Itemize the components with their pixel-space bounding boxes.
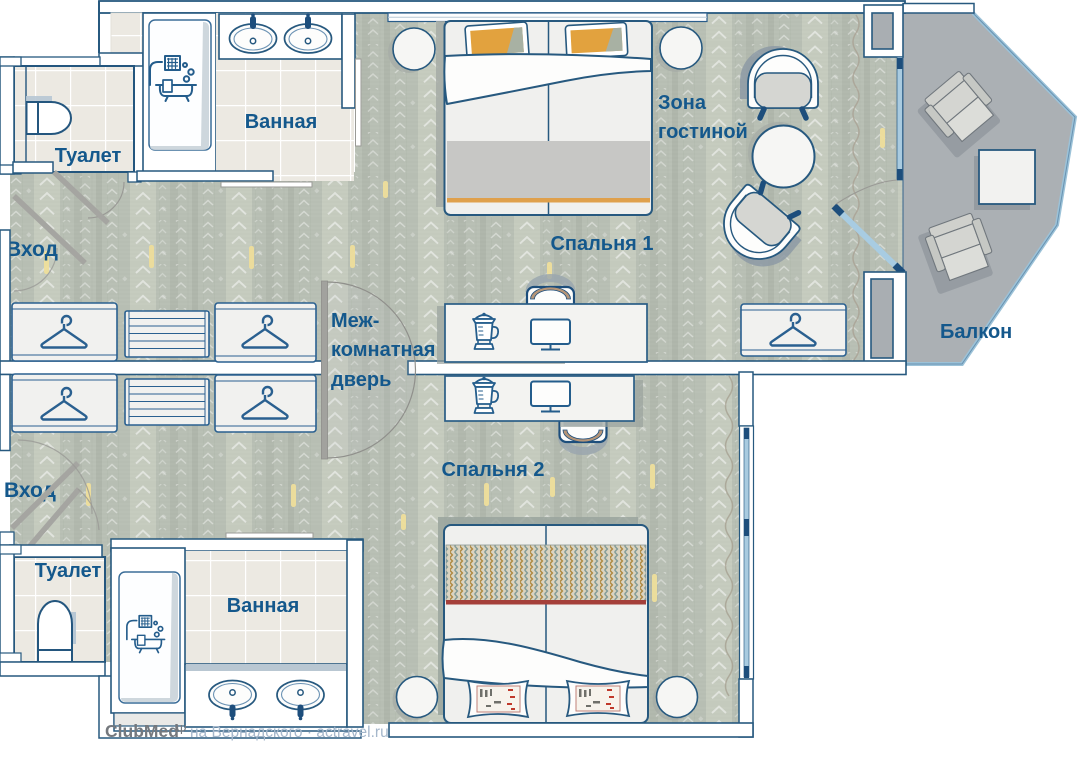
svg-text:на Вернадского · actravel.ru: на Вернадского · actravel.ru (190, 724, 389, 741)
svg-text:Ψ: Ψ (176, 722, 187, 737)
svg-text:Вход: Вход (6, 238, 58, 261)
svg-text:Ванная: Ванная (245, 111, 318, 133)
svg-text:дверь: дверь (331, 369, 391, 391)
svg-text:гостиной: гостиной (658, 121, 748, 143)
svg-text:Туалет: Туалет (35, 560, 102, 582)
svg-text:Ванная: Ванная (227, 595, 300, 617)
svg-text:Спальня 1: Спальня 1 (550, 233, 653, 255)
svg-text:Меж-: Меж- (331, 310, 379, 332)
svg-text:Зона: Зона (658, 92, 707, 114)
svg-text:ClubMed: ClubMed (105, 721, 179, 741)
svg-text:Спальня 2: Спальня 2 (441, 459, 544, 481)
svg-text:Туалет: Туалет (55, 145, 122, 167)
svg-text:Балкон: Балкон (940, 321, 1012, 343)
svg-text:комнатная: комнатная (331, 339, 435, 361)
